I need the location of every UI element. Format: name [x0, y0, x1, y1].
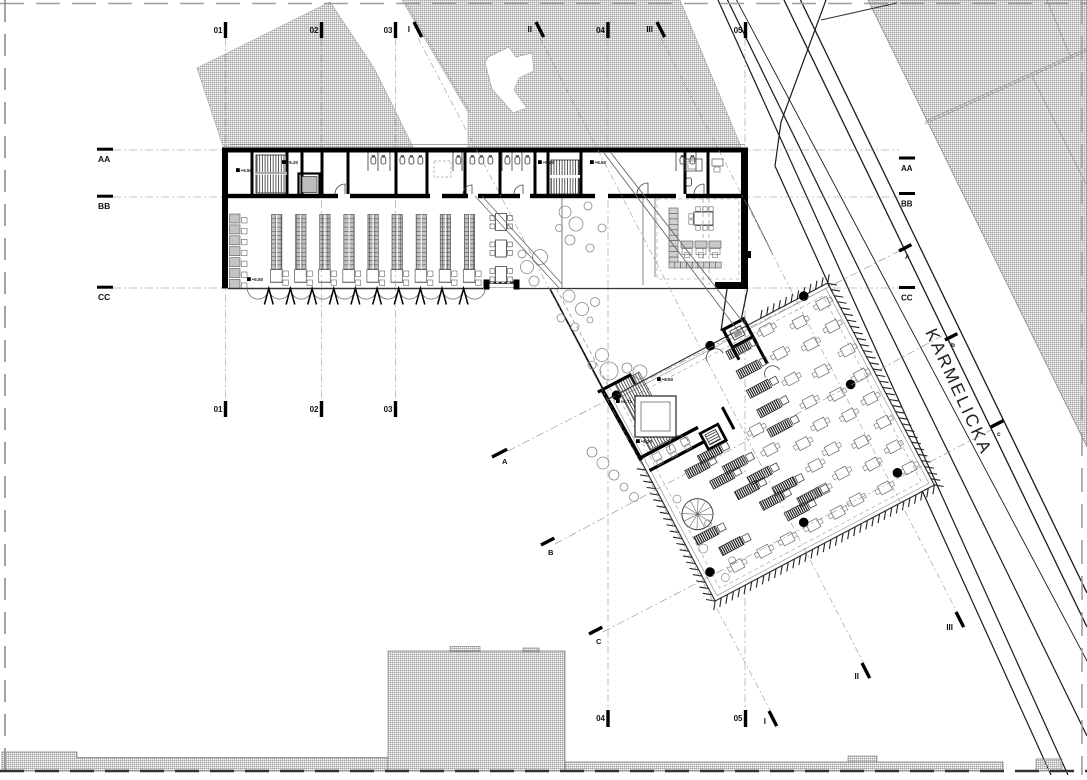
svg-text:BB: BB	[98, 201, 110, 211]
svg-text:+5.20: +5.20	[543, 160, 555, 165]
svg-text:+5.20: +5.20	[287, 160, 299, 165]
svg-text:b: b	[951, 342, 955, 349]
svg-text:04: 04	[596, 714, 605, 723]
svg-text:CC: CC	[98, 292, 110, 302]
svg-text:AA: AA	[98, 154, 110, 164]
svg-text:02: 02	[310, 26, 319, 35]
svg-text:III: III	[646, 25, 653, 34]
svg-text:II: II	[528, 25, 532, 34]
svg-text:+6.50: +6.50	[252, 277, 264, 282]
svg-text:A: A	[905, 254, 910, 261]
svg-text:CC: CC	[901, 294, 913, 303]
svg-text:I: I	[764, 717, 766, 726]
svg-text:04: 04	[596, 26, 605, 35]
svg-text:05: 05	[734, 26, 743, 35]
svg-text:A: A	[502, 457, 508, 466]
svg-text:II: II	[855, 672, 859, 681]
svg-text:03: 03	[384, 405, 393, 414]
svg-text:+6.50: +6.50	[241, 168, 253, 173]
svg-text:+4.71: +4.71	[621, 399, 633, 404]
svg-text:01: 01	[214, 405, 223, 414]
svg-text:BB: BB	[901, 200, 913, 209]
svg-text:01: 01	[214, 26, 223, 35]
svg-text:B: B	[548, 548, 554, 557]
svg-text:03: 03	[384, 26, 393, 35]
svg-text:c: c	[997, 431, 1001, 438]
svg-text:05: 05	[734, 714, 743, 723]
svg-text:III: III	[946, 623, 953, 632]
svg-text:02: 02	[310, 405, 319, 414]
svg-text:I: I	[408, 25, 410, 34]
svg-text:+9.20: +9.20	[641, 439, 653, 444]
svg-text:+6.50: +6.50	[662, 377, 674, 382]
svg-text:C: C	[596, 637, 602, 646]
svg-text:AA: AA	[901, 164, 913, 173]
